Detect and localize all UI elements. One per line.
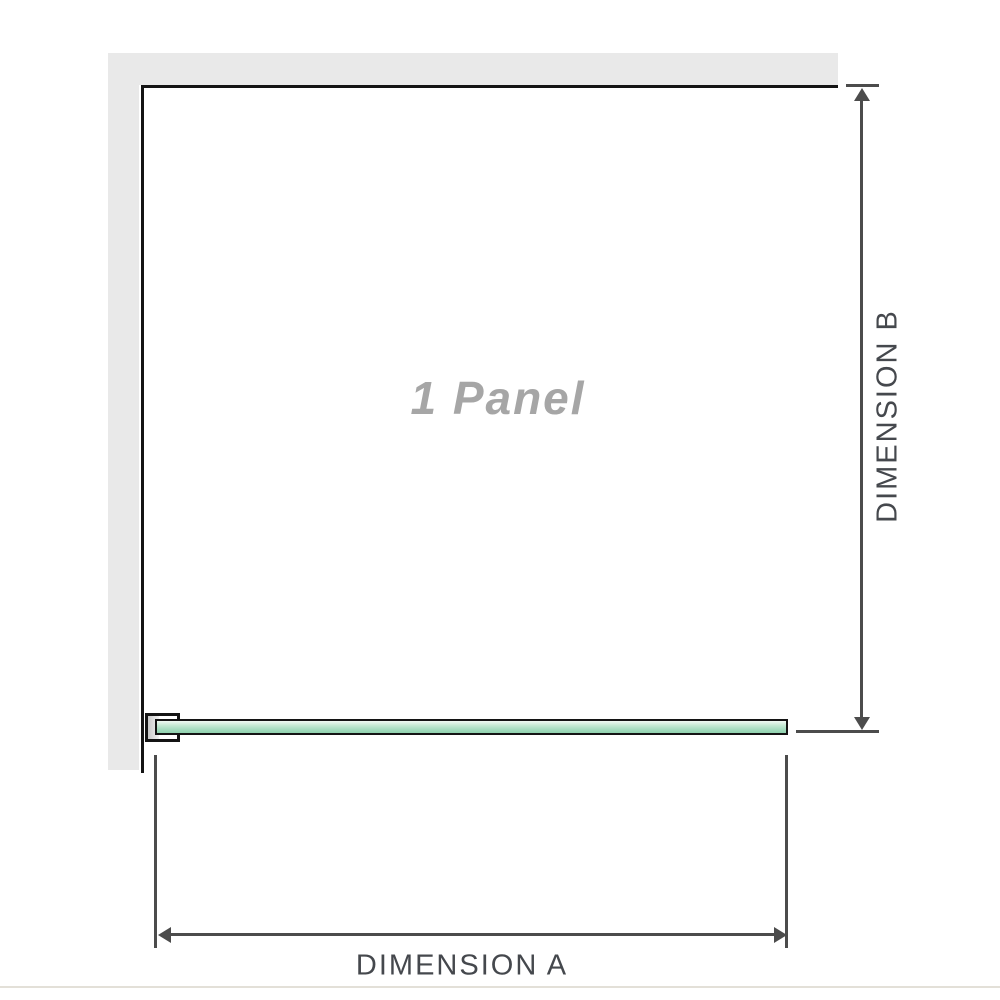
dimension-a-extension-right: [785, 755, 788, 948]
dimension-b-line: [860, 94, 863, 722]
panel-count-label: 1 Panel: [410, 371, 585, 425]
panel-outline-top: [141, 85, 838, 88]
dimension-b-arrow-down-icon: [854, 717, 870, 730]
wall-horizontal-strip: [108, 53, 838, 85]
panel-outline-left: [141, 85, 144, 773]
dimension-a-extension-left: [154, 755, 157, 948]
page-bottom-divider: [0, 986, 1000, 988]
dimension-b-label: DIMENSION B: [872, 309, 905, 523]
dimension-a-label: DIMENSION A: [356, 950, 568, 983]
dimension-b-arrow-up-icon: [854, 88, 870, 101]
panel-dimension-diagram: 1 Panel DIMENSION B DIMENSION A: [0, 0, 1000, 1000]
dimension-a-line: [165, 933, 783, 936]
dimension-b-tick-bottom: [796, 730, 879, 733]
dimension-a-arrow-left-icon: [158, 927, 171, 943]
dimension-a-arrow-right-icon: [774, 927, 787, 943]
glass-panel-plan: [155, 719, 788, 735]
dimension-b-tick-top: [846, 84, 879, 87]
wall-vertical-strip: [108, 53, 139, 770]
